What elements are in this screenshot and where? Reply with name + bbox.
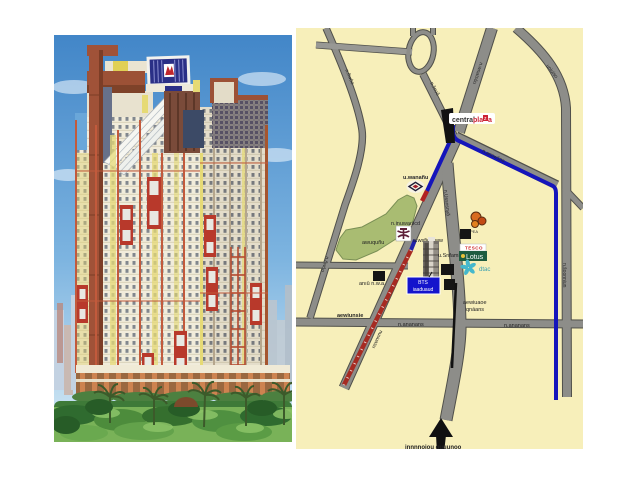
svg-text:a: a (488, 117, 492, 124)
svg-text:n.inuwauicd: n.inuwauicd (391, 221, 420, 227)
svg-text:anıū n.w.a.: anıū n.w.a. (359, 281, 386, 287)
svg-text:innnnoiou quuunoo: innnnoiou quuunoo (405, 445, 462, 449)
svg-text:n.ananans: n.ananans (504, 323, 530, 329)
svg-text:TESCO: TESCO (465, 246, 483, 251)
svg-text:pla: pla (473, 117, 483, 124)
svg-text:awuquñu: awuquñu (362, 240, 384, 246)
svg-text:PEA: PEA (470, 229, 478, 234)
svg-text:central: central (452, 117, 475, 124)
svg-text:u.wanañu: u.wanañu (403, 175, 428, 181)
svg-text:qnáans: qnáans (466, 307, 484, 313)
svg-text:iaaduaud: iaaduaud (413, 287, 434, 293)
svg-text:aewiunsie: aewiunsie (337, 313, 363, 319)
svg-text:aewiuaoe: aewiuaoe (463, 300, 487, 306)
svg-text:dtac: dtac (479, 267, 490, 273)
svg-text:n.ananans: n.ananans (398, 322, 424, 328)
svg-text:n.šoonniun: n.šoonniun (561, 263, 567, 288)
svg-text:BTS: BTS (418, 280, 428, 286)
svg-text:Lotus: Lotus (466, 254, 484, 261)
